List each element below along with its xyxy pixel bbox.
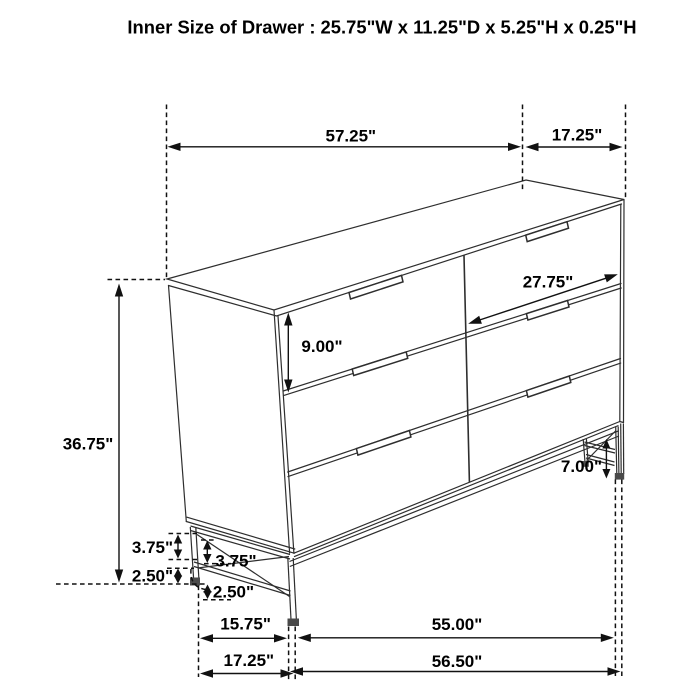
svg-text:Inner Size of Drawer : 25.75"W: Inner Size of Drawer : 25.75"W x 11.25"D… (127, 17, 636, 38)
svg-text:27.75": 27.75" (523, 273, 574, 292)
svg-text:9.00": 9.00" (301, 337, 342, 356)
svg-text:2.50": 2.50" (213, 583, 254, 602)
svg-text:3.75": 3.75" (132, 538, 173, 557)
svg-text:15.75": 15.75" (220, 615, 271, 634)
svg-text:17.25": 17.25" (552, 126, 603, 145)
svg-text:7.00": 7.00" (561, 457, 602, 476)
svg-text:55.00": 55.00" (432, 615, 483, 634)
svg-text:36.75": 36.75" (63, 435, 114, 454)
svg-text:3.75": 3.75" (215, 552, 256, 571)
svg-text:2.50": 2.50" (132, 567, 173, 586)
svg-text:56.50": 56.50" (432, 652, 483, 671)
svg-text:17.25": 17.25" (223, 651, 274, 670)
svg-text:57.25": 57.25" (325, 127, 376, 146)
